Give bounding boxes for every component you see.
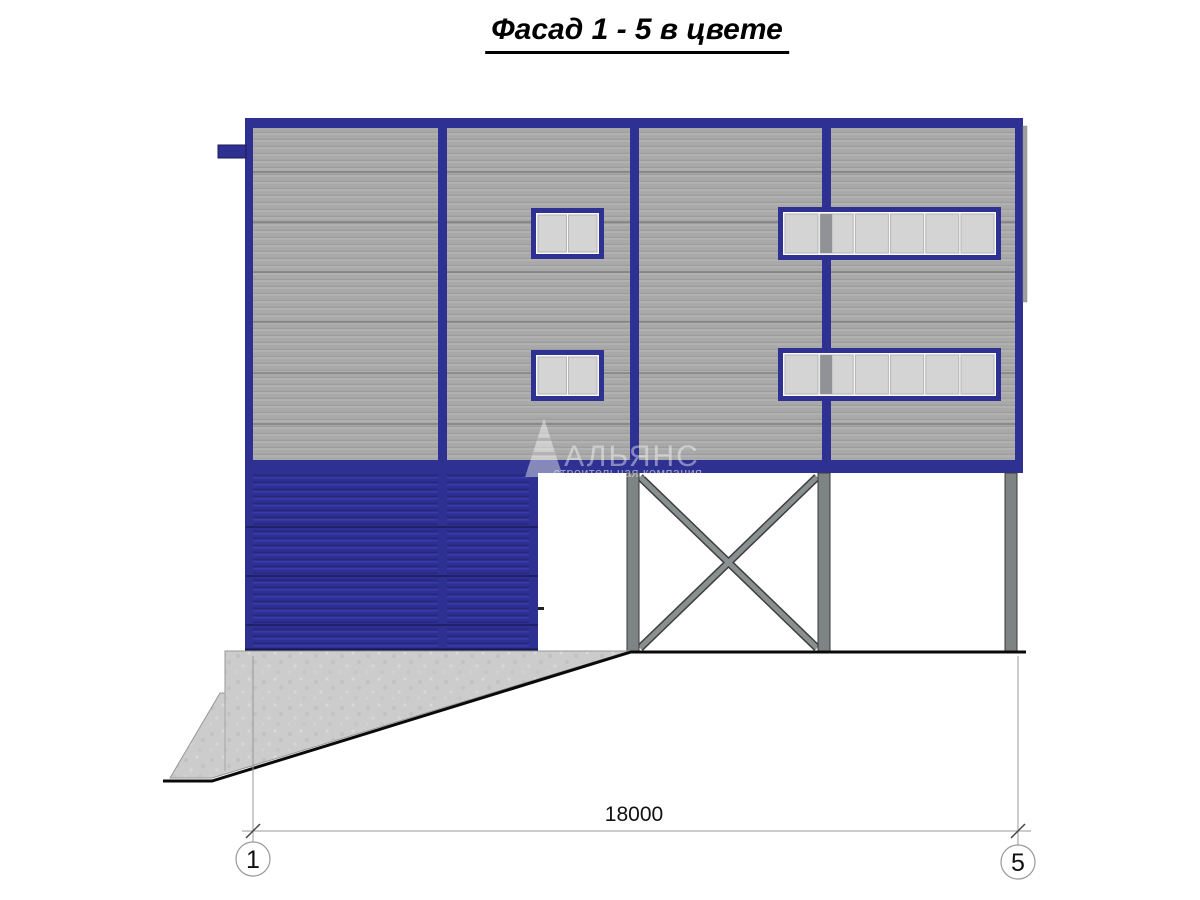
- facade-upper-body: [218, 118, 1027, 473]
- concrete-foundation: [170, 651, 630, 778]
- window-pane: [961, 355, 994, 394]
- gutter-stub: [218, 145, 246, 158]
- facade-frame-left: [245, 118, 253, 473]
- window-pane: [569, 357, 598, 394]
- window-pane: [926, 214, 959, 253]
- facade-mullion: [822, 128, 831, 461]
- cross-bracing: [640, 477, 817, 648]
- steel-column: [818, 473, 830, 652]
- axis-number-left: 1: [246, 846, 260, 874]
- door-side-latch: [538, 607, 544, 610]
- ribbon-window-lower: [778, 348, 1001, 401]
- lower-blue-section: [245, 473, 544, 651]
- dimension-value: 18000: [605, 803, 663, 826]
- steel-column: [1005, 473, 1017, 652]
- window-pane: [855, 214, 888, 253]
- axis-marker-5: 5: [1001, 845, 1035, 879]
- window-vent-strip: [820, 214, 832, 253]
- steel-column: [627, 473, 639, 652]
- window-pane: [538, 357, 567, 394]
- window-pane: [785, 355, 818, 394]
- window-vent-strip: [820, 355, 832, 394]
- facade-elevation-svg: АЛЬЯНС строительная компания 18000 1 5: [0, 0, 1200, 900]
- facade-frame-top: [245, 118, 1023, 128]
- substructure: [627, 473, 1017, 652]
- window-pane: [891, 355, 924, 394]
- small-window-lower: [531, 350, 604, 401]
- window-pane: [569, 215, 598, 252]
- axis-number-right: 5: [1011, 849, 1025, 877]
- window-pane: [926, 355, 959, 394]
- watermark-subtitle: строительная компания: [554, 466, 703, 480]
- small-window-upper: [531, 208, 604, 259]
- facade-mullion: [438, 128, 447, 461]
- axis-marker-1: 1: [236, 842, 270, 876]
- facade-drawing-page: Фасад 1 - 5 в цвете: [0, 0, 1200, 900]
- window-pane: [855, 355, 888, 394]
- window-pane: [891, 214, 924, 253]
- ground: [163, 651, 1026, 781]
- window-pane: [538, 215, 567, 252]
- right-edge-return: [1023, 126, 1027, 302]
- window-pane: [785, 214, 818, 253]
- facade-mullion: [630, 128, 639, 461]
- facade-frame-right: [1015, 118, 1023, 473]
- window-pane: [961, 214, 994, 253]
- ribbon-window-upper: [778, 207, 1001, 260]
